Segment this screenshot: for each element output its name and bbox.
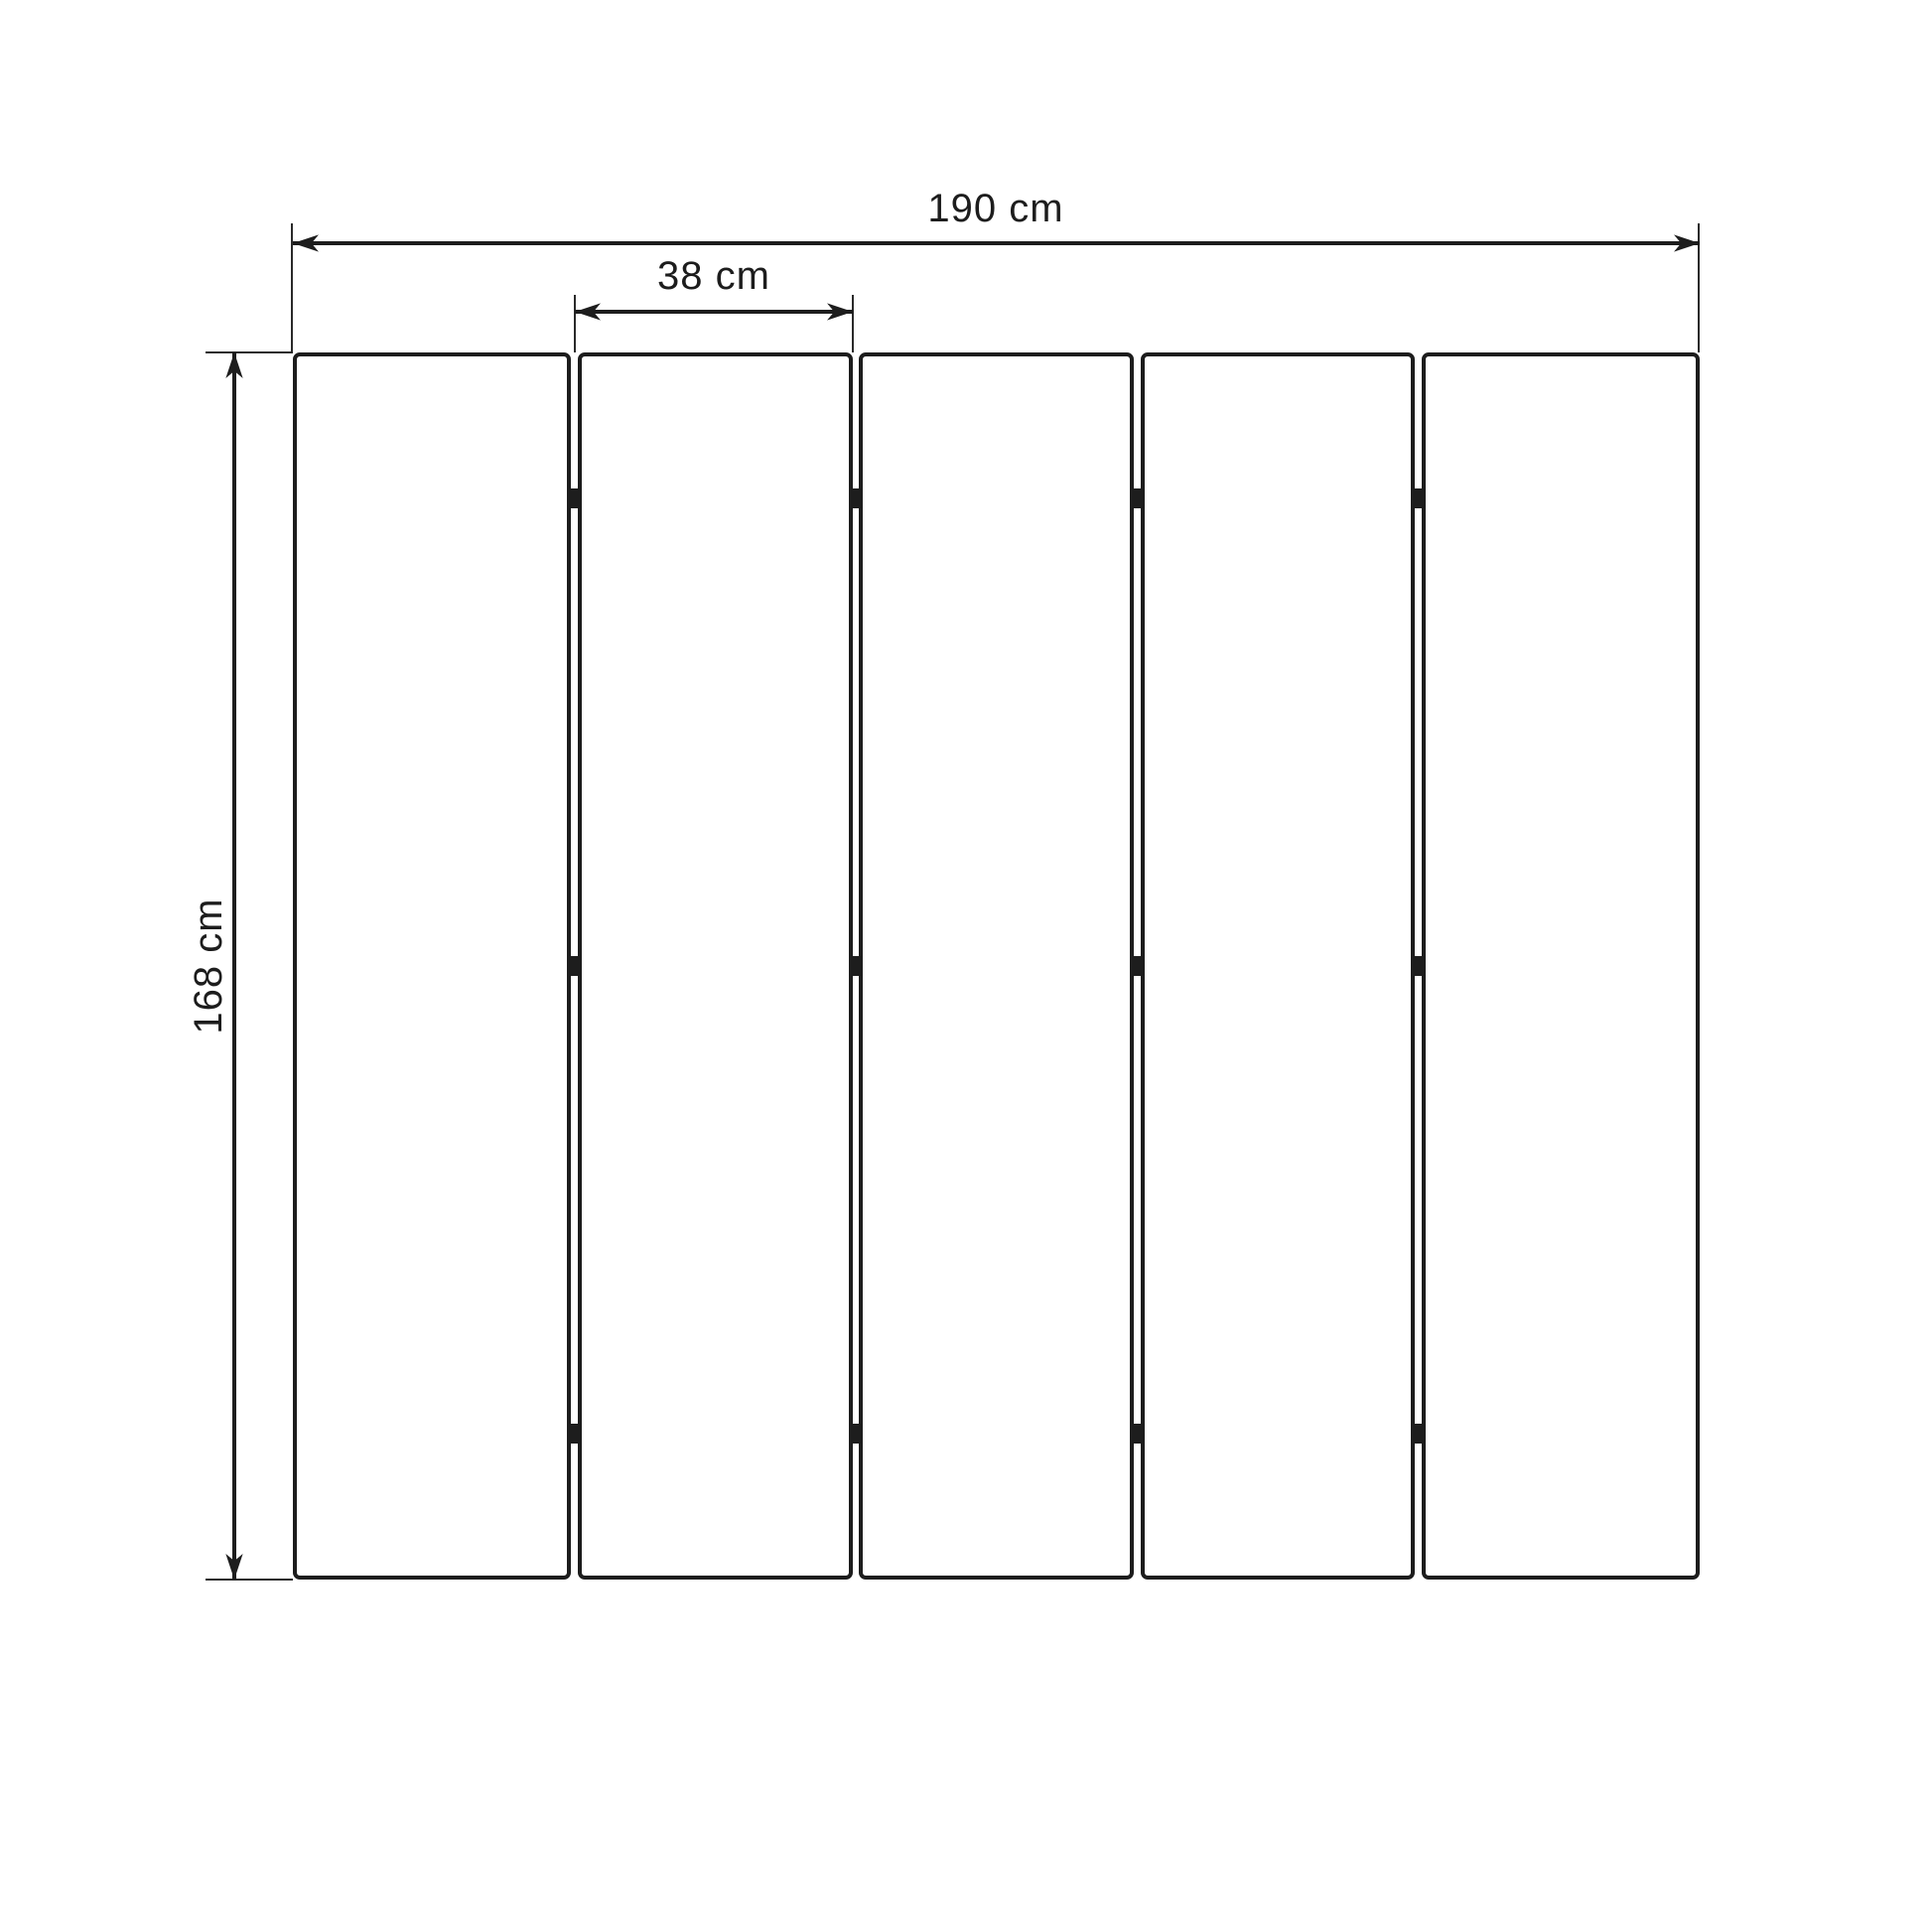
extension-line-right <box>852 295 854 352</box>
hinge-mark <box>570 1424 579 1444</box>
hinge-mark <box>1133 1424 1142 1444</box>
screen-panel-5 <box>1422 352 1700 1580</box>
extension-line-left <box>574 295 576 352</box>
hinge-mark <box>1414 488 1423 508</box>
dimension-line-total-width <box>293 241 1700 245</box>
extension-line-top <box>206 351 293 353</box>
technical-drawing-canvas: 190 cm 38 cm 168 cm <box>0 0 1932 1932</box>
hinge-mark <box>852 956 861 976</box>
screen-panel-2 <box>578 352 853 1580</box>
hinge-mark <box>1133 956 1142 976</box>
hinge-mark <box>1414 1424 1423 1444</box>
dimension-line-panel-width <box>575 310 853 314</box>
panel-width-label: 38 cm <box>657 256 770 296</box>
hinge-mark <box>852 488 861 508</box>
dimension-line-height <box>232 352 236 1580</box>
total-width-label: 190 cm <box>927 189 1063 228</box>
extension-line-bottom <box>206 1579 293 1581</box>
hinge-mark <box>570 488 579 508</box>
screen-panel-4 <box>1141 352 1415 1580</box>
height-label: 168 cm <box>189 897 228 1034</box>
hinge-mark <box>1133 488 1142 508</box>
hinge-mark <box>852 1424 861 1444</box>
hinge-mark <box>1414 956 1423 976</box>
screen-panel-3 <box>859 352 1134 1580</box>
hinge-mark <box>570 956 579 976</box>
screen-panel-1 <box>293 352 571 1580</box>
